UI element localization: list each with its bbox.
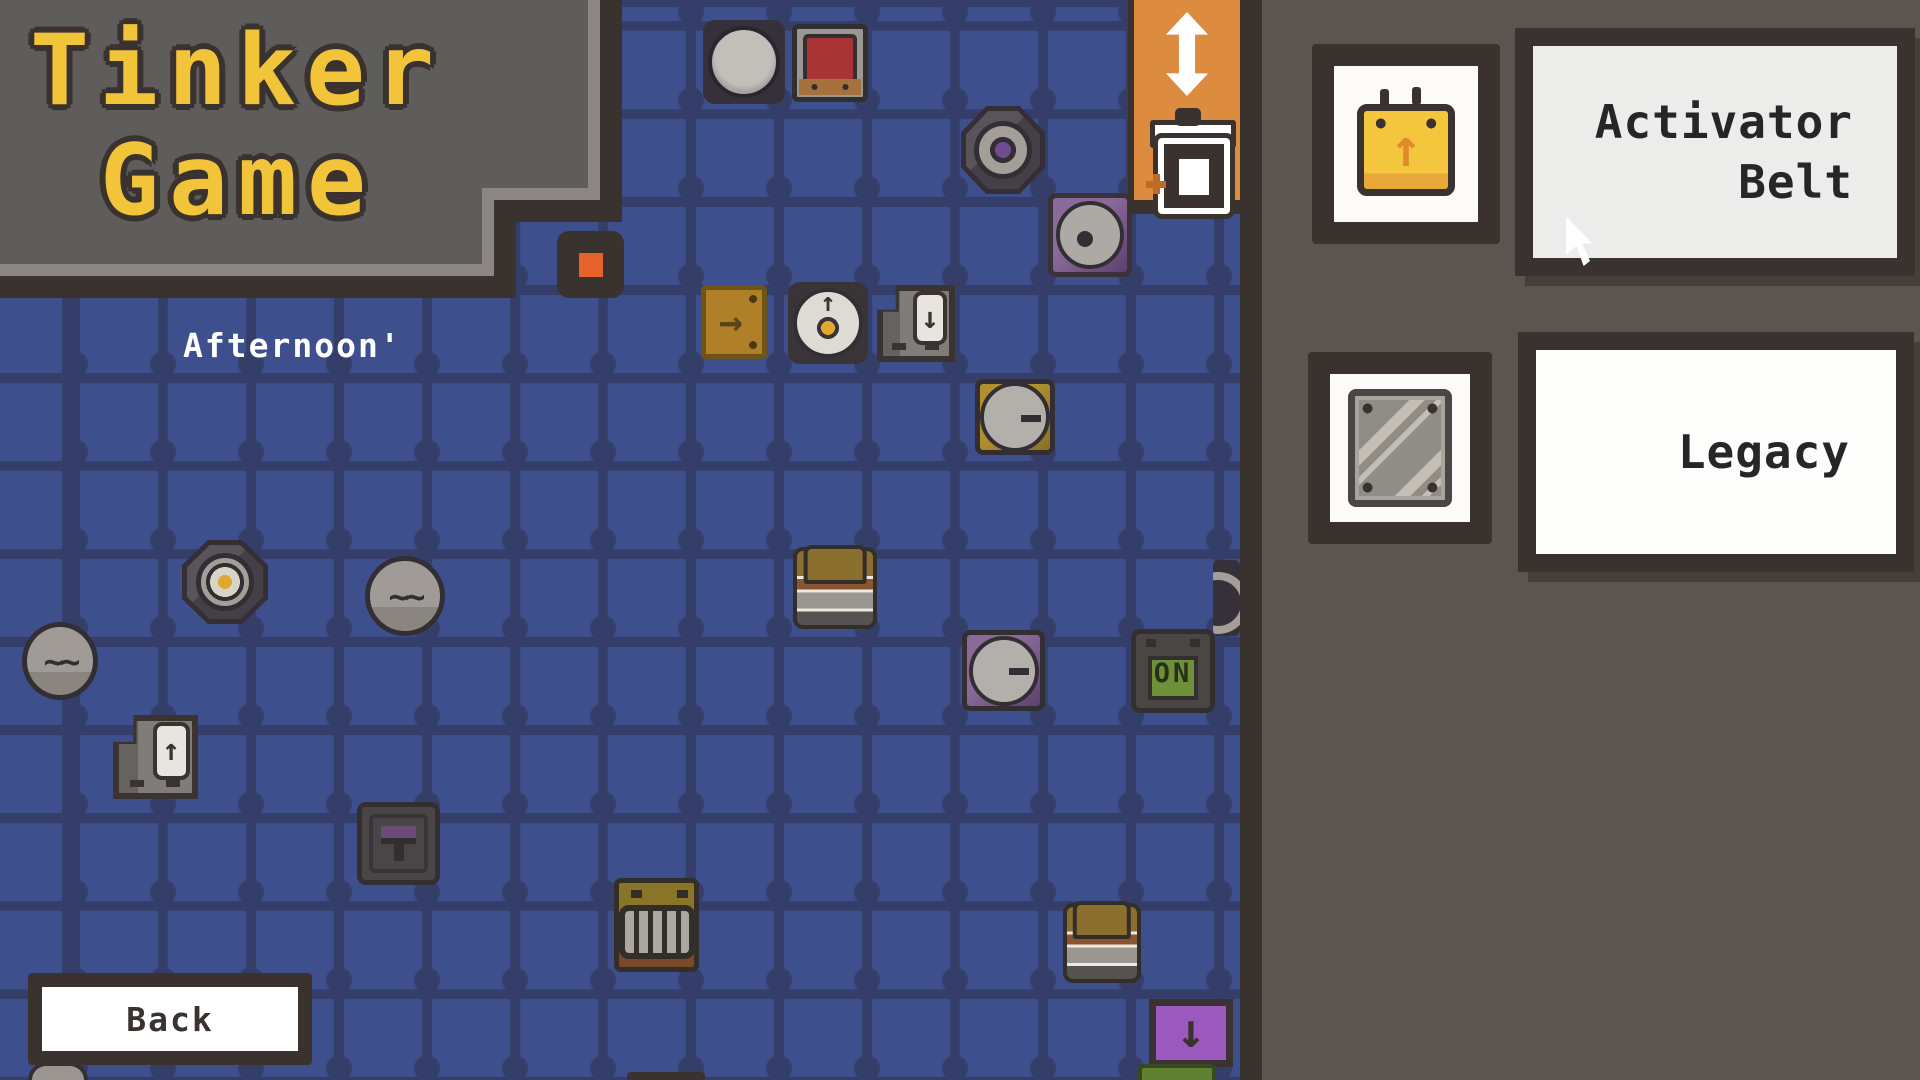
octagon-tile[interactable] bbox=[182, 540, 268, 624]
legacy-label-text: Legacy bbox=[1678, 425, 1850, 479]
legacy-icon-button[interactable] bbox=[1308, 352, 1492, 544]
wheel-tile[interactable] bbox=[365, 556, 445, 636]
floppy-tile[interactable] bbox=[877, 285, 955, 362]
minus-circle-tile[interactable] bbox=[962, 630, 1045, 711]
on-tile[interactable]: ON bbox=[1131, 629, 1215, 713]
back-button[interactable]: Back bbox=[28, 973, 312, 1065]
game-board[interactable]: ON Tinker Game Afternoon' Back bbox=[0, 0, 1240, 1080]
eye-tile[interactable] bbox=[1048, 193, 1132, 277]
metal-plate-icon bbox=[1348, 389, 1452, 507]
t-lever-tile[interactable] bbox=[357, 802, 440, 885]
game-logo-line1: Tinker bbox=[30, 22, 444, 120]
dial-tile[interactable] bbox=[788, 282, 868, 364]
grill-tile[interactable] bbox=[614, 878, 699, 972]
game-logo-line2: Game bbox=[100, 132, 376, 230]
move-vertical-icon[interactable] bbox=[1156, 12, 1218, 96]
belt-right-tile[interactable] bbox=[701, 285, 767, 359]
tool-panel bbox=[1128, 0, 1240, 214]
activator-belt-icon-button[interactable] bbox=[1312, 44, 1500, 244]
sidebar: Activator Belt Legacy bbox=[1262, 0, 1920, 1080]
tv-tile[interactable] bbox=[792, 24, 868, 102]
trash-icon[interactable] bbox=[1150, 108, 1226, 208]
spring-tile[interactable] bbox=[1063, 903, 1141, 983]
spring-tile[interactable] bbox=[793, 547, 877, 629]
legacy-icon-bg bbox=[1330, 374, 1470, 522]
board-edge bbox=[1240, 0, 1262, 1080]
legacy-label[interactable]: Legacy bbox=[1518, 332, 1914, 572]
floppy-tile[interactable] bbox=[113, 715, 198, 799]
green-sliver-tile[interactable] bbox=[1138, 1064, 1216, 1080]
tile-label: ON bbox=[1136, 660, 1210, 688]
minus-circle-tile[interactable] bbox=[975, 379, 1055, 455]
logo-panel: Tinker Game bbox=[0, 0, 624, 300]
wheel-tile[interactable] bbox=[22, 622, 98, 700]
belt-icon bbox=[1357, 104, 1455, 196]
octagon-tile[interactable] bbox=[961, 106, 1045, 194]
edge-disc-tile[interactable] bbox=[1213, 560, 1240, 636]
activator-belt-icon-bg bbox=[1334, 66, 1478, 222]
activator-belt-label-line1: Activator bbox=[1595, 99, 1853, 145]
dark-sliver-tile[interactable] bbox=[627, 1072, 705, 1080]
purple-arrow-tile[interactable] bbox=[1149, 999, 1233, 1067]
round-button-tile[interactable] bbox=[703, 20, 785, 104]
day-label: Afternoon' bbox=[183, 326, 402, 365]
activator-belt-label-line2: Belt bbox=[1738, 159, 1853, 205]
trash-lid-handle bbox=[1175, 108, 1201, 126]
game-screen: ON Tinker Game Afternoon' Back Activator… bbox=[0, 0, 1920, 1080]
